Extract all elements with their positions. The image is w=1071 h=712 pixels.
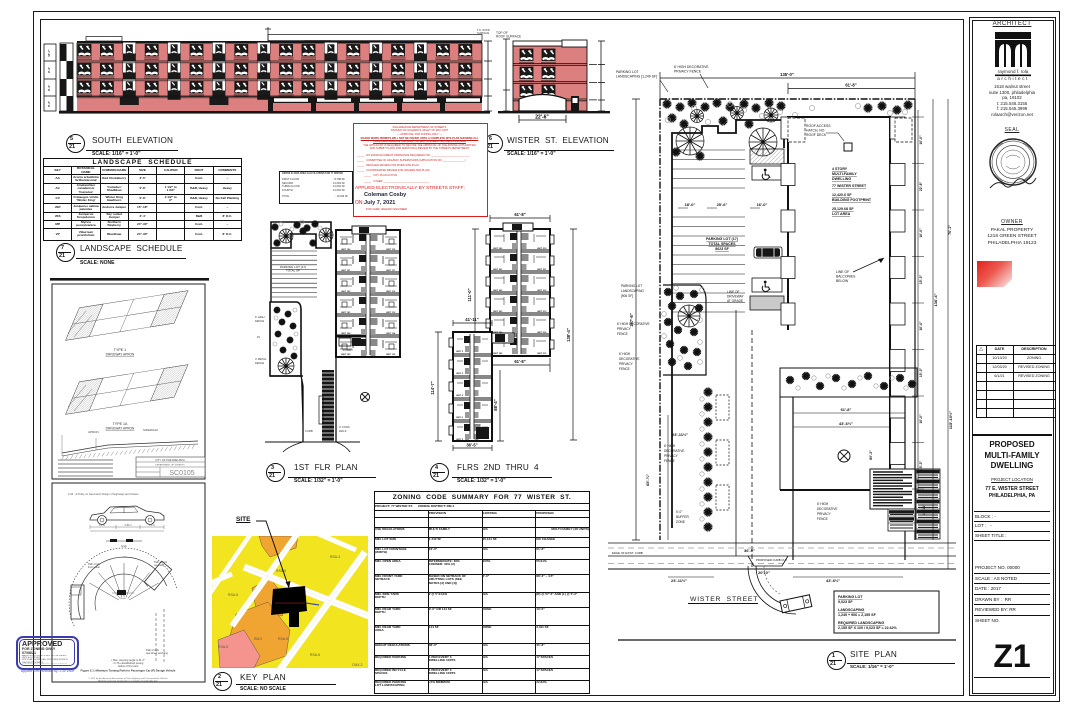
svg-text:10'-7": 10'-7" <box>47 49 51 57</box>
svg-text:PL: PL <box>257 335 261 339</box>
svg-text:rear wheel overhang: rear wheel overhang <box>146 652 168 655</box>
svg-text:RSA-5: RSA-5 <box>218 645 228 649</box>
svg-text:DECORATIVE: DECORATIVE <box>817 507 837 511</box>
svg-text:6' HIGH DECORATIVE: 6' HIGH DECORATIVE <box>617 322 650 326</box>
svg-text:16'-0": 16'-0" <box>757 202 768 207</box>
svg-text:65'-¾": 65'-¾" <box>645 474 650 486</box>
svg-text:TOTAL SPACES: TOTAL SPACES <box>708 242 736 246</box>
svg-text:UNIT 2: UNIT 2 <box>456 439 464 441</box>
svg-text:TYPE 1: TYPE 1 <box>114 348 126 352</box>
svg-text:CITY OF PHILADELPHIA: CITY OF PHILADELPHIA <box>155 458 185 462</box>
svg-text:UNIT 101: UNIT 101 <box>341 270 351 272</box>
svg-text:UNIT 211: UNIT 211 <box>537 269 547 271</box>
svg-text:UNIT 201: UNIT 201 <box>493 269 503 271</box>
svg-text:CURB: CURB <box>305 429 313 433</box>
svg-text:22'-8": 22'-8" <box>919 182 923 192</box>
svg-text:LANDSCAPING [1,249 SF]: LANDSCAPING [1,249 SF] <box>616 75 657 79</box>
svg-text:UNIT 111: UNIT 111 <box>386 270 396 272</box>
svg-text:UNIT 213: UNIT 213 <box>537 311 547 313</box>
svg-text:22'-6": 22'-6" <box>535 115 549 121</box>
svg-text:114'-7": 114'-7" <box>430 381 435 394</box>
svg-text:10'-0": 10'-0" <box>919 228 923 238</box>
svg-text:BELOW: BELOW <box>836 279 849 283</box>
svg-text:1,249 + 906 = 2,155 SF: 1,249 + 906 = 2,155 SF <box>838 613 877 617</box>
svg-text:UNIT 2: UNIT 2 <box>456 373 464 375</box>
svg-text:BALCONIES: BALCONIES <box>836 275 856 279</box>
svg-text:PARKING LOT (17): PARKING LOT (17) <box>706 237 739 241</box>
svg-text:25'-6": 25'-6" <box>717 202 728 207</box>
svg-text:9'-4": 9'-4" <box>47 84 51 91</box>
svg-text:36'-0": 36'-0" <box>744 548 755 553</box>
svg-text:FENCE: FENCE <box>817 517 828 521</box>
svg-text:10'-0": 10'-0" <box>919 135 923 145</box>
svg-text:FENCE: FENCE <box>255 319 264 323</box>
svg-text:15'-3": 15'-3" <box>919 275 923 285</box>
svg-text:DEPARTMENT OF STREETS: DEPARTMENT OF STREETS <box>155 464 185 467</box>
svg-text:ROOF SURFACE: ROOF SURFACE <box>496 35 521 39</box>
svg-text:UNIT 112: UNIT 112 <box>386 291 396 293</box>
svg-text:Figure 2.1: Minimum Turning Pa: Figure 2.1: Minimum Turning Path for Pas… <box>81 669 176 673</box>
svg-text:UNIT 214: UNIT 214 <box>537 331 547 334</box>
svg-text:3.4 m: 3.4 m <box>99 524 105 527</box>
svg-text:BUFFER: BUFFER <box>676 515 689 519</box>
svg-text:FENCE: FENCE <box>255 361 264 365</box>
svg-text:WALK: WALK <box>339 429 347 433</box>
svg-text:BUILDING FOOTPRINT: BUILDING FOOTPRINT <box>832 198 872 202</box>
svg-text:115'-10½": 115'-10½" <box>948 411 953 430</box>
svg-text:RSA-3: RSA-3 <box>330 555 340 559</box>
svg-text:RM-2: RM-2 <box>254 637 262 641</box>
svg-text:15'-3": 15'-3" <box>919 461 923 471</box>
svg-text:SC0105: SC0105 <box>169 470 194 477</box>
svg-text:DWELLING: DWELLING <box>832 177 851 181</box>
svg-text:AT GRADE: AT GRADE <box>727 299 743 303</box>
svg-text:61'-8": 61'-8" <box>841 407 852 412</box>
svg-text:DECORATIVE: DECORATIVE <box>664 449 684 453</box>
svg-text:TYPE 1A: TYPE 1A <box>113 422 128 426</box>
svg-text:LINE OF: LINE OF <box>727 290 739 294</box>
svg-text:15'-3": 15'-3" <box>919 368 923 378</box>
svg-text:9,023 SF: 9,023 SF <box>838 600 853 604</box>
svg-text:PARKING LOT: PARKING LOT <box>838 595 863 599</box>
svg-text:4' METAL: 4' METAL <box>255 357 267 361</box>
svg-text:9'-4": 9'-4" <box>47 100 51 107</box>
svg-text:3.35 m: 3.35 m <box>124 524 131 527</box>
svg-text:LANDSCAPING: LANDSCAPING <box>838 608 865 612</box>
svg-text:10'-0": 10'-0" <box>919 414 923 424</box>
svg-text:front wheel: front wheel <box>88 566 100 569</box>
svg-text:36'-5": 36'-5" <box>466 443 477 448</box>
svg-text:WISTER STREET: WISTER STREET <box>690 596 758 603</box>
svg-text:DECORATIVE: DECORATIVE <box>619 357 639 361</box>
svg-text:111'-0": 111'-0" <box>467 288 472 301</box>
svg-text:SURFACE: SURFACE <box>477 31 490 35</box>
svg-text:61'-8": 61'-8" <box>514 212 525 217</box>
svg-text:20'10": 20'10" <box>758 570 770 575</box>
svg-text:RSA-5: RSA-5 <box>310 653 320 657</box>
svg-text:UNIT 100: UNIT 100 <box>341 249 351 251</box>
svg-text:PRIVACY: PRIVACY <box>817 512 832 516</box>
svg-text:UNIT 103: UNIT 103 <box>341 312 351 314</box>
svg-text:UNIT 2: UNIT 2 <box>456 351 464 353</box>
svg-text:5'-0": 5'-0" <box>676 510 682 514</box>
svg-text:4 STORY: 4 STORY <box>832 167 848 171</box>
svg-text:DRIVEWAY APRON: DRIVEWAY APRON <box>106 353 135 357</box>
svg-text:LOT AREA: LOT AREA <box>832 212 851 216</box>
svg-text:9'-4": 9'-4" <box>47 66 51 73</box>
svg-text:overhang: overhang <box>154 564 165 567</box>
svg-text:43'-6½": 43'-6½" <box>826 578 840 583</box>
svg-text:UNIT 114: UNIT 114 <box>386 332 396 335</box>
svg-text:6' HIGH DECORATIVE: 6' HIGH DECORATIVE <box>674 65 709 69</box>
svg-text:radius of first auto: radius of first auto <box>118 664 139 668</box>
svg-text:Scale: Scale <box>120 598 126 600</box>
svg-text:0.9 m: 0.9 m <box>149 524 155 527</box>
svg-text:LOBBY: LOBBY <box>343 348 353 352</box>
svg-text:ROOF ACCESS: ROOF ACCESS <box>806 124 831 128</box>
svg-text:136'-4": 136'-4" <box>933 293 938 306</box>
svg-text:ROOF DECK: ROOF DECK <box>806 133 827 137</box>
svg-text:raymond f. rola: raymond f. rola <box>998 69 1029 74</box>
svg-text:UNIT 115: UNIT 115 <box>386 354 396 356</box>
svg-text:UNIT 105: UNIT 105 <box>341 354 351 356</box>
svg-text:UNIT 212: UNIT 212 <box>537 290 547 292</box>
svg-text:18'-0": 18'-0" <box>685 202 696 207</box>
svg-text:6' HIGH: 6' HIGH <box>817 502 829 506</box>
svg-text:LINE OF: LINE OF <box>836 270 849 274</box>
svg-text:DRIVEWAY APRON: DRIVEWAY APRON <box>106 427 135 431</box>
svg-text:4' CONC.: 4' CONC. <box>339 425 351 429</box>
svg-text:UNIT 210: UNIT 210 <box>537 248 547 250</box>
svg-text:UNIT 203: UNIT 203 <box>493 311 503 313</box>
svg-text:APRON: APRON <box>88 430 99 434</box>
svg-text:138'-4": 138'-4" <box>566 328 571 342</box>
svg-text:61'-8": 61'-8" <box>514 359 525 364</box>
svg-text:UNIT 202: UNIT 202 <box>493 290 503 292</box>
svg-text:UNIT 2: UNIT 2 <box>456 395 464 397</box>
svg-text:6' HIGH: 6' HIGH <box>255 315 265 319</box>
svg-text:PRIVACY FENCE: PRIVACY FENCE <box>674 70 702 74</box>
svg-text:All rights reserved. Duplicati: All rights reserved. Duplication is a vi… <box>98 680 158 683</box>
svg-text:6' HIGH: 6' HIGH <box>664 444 676 448</box>
svg-text:DRIVEWAY: DRIVEWAY <box>727 295 745 299</box>
svg-text:FENCE: FENCE <box>619 367 630 371</box>
svg-text:12,420.6 SF: 12,420.6 SF <box>832 193 852 197</box>
svg-text:UNIT 113: UNIT 113 <box>386 312 396 314</box>
svg-text:UNIT 205: UNIT 205 <box>493 353 503 355</box>
svg-text:61'-8": 61'-8" <box>845 83 856 88</box>
svg-text:8623 SF: 8623 SF <box>715 247 729 251</box>
svg-text:Scale: Scale <box>121 545 128 548</box>
svg-text:UNIT 215: UNIT 215 <box>537 353 547 355</box>
svg-text:© 2011 by the American Associa: © 2011 by the American Association of St… <box>88 677 168 680</box>
svg-text:EDGE OF EXIST. CURB: EDGE OF EXIST. CURB <box>612 551 643 555</box>
svg-text:77 WISTER STREET: 77 WISTER STREET <box>832 184 867 188</box>
svg-text:PRIVACY: PRIVACY <box>664 454 679 458</box>
svg-text:PARKING LOT: PARKING LOT <box>621 284 642 288</box>
svg-text:23'-11½": 23'-11½" <box>671 578 687 583</box>
svg-text:2-30 A Policy on Geometric D: 2-30 A Policy on Geometric Design of Hig… <box>68 492 139 496</box>
svg-text:10'-0": 10'-0" <box>919 321 923 331</box>
svg-text:UNIT 104: UNIT 104 <box>341 332 351 335</box>
svg-text:MULTI-FAMILY: MULTI-FAMILY <box>832 172 857 176</box>
svg-text:25,129.68 SF: 25,129.68 SF <box>832 207 854 211</box>
svg-text:UNIT 2: UNIT 2 <box>456 417 464 419</box>
svg-text:[906 SF]: [906 SF] <box>621 294 633 298</box>
svg-text:PARKING LOT: PARKING LOT <box>616 70 639 74</box>
svg-text:PRIVACY: PRIVACY <box>619 362 634 366</box>
svg-text:PRIVACY: PRIVACY <box>617 327 632 331</box>
svg-text:UNIT 200: UNIT 200 <box>493 248 503 250</box>
svg-text:UNIT 110: UNIT 110 <box>386 249 396 251</box>
svg-text:PROPOSED CURB CUT: PROPOSED CURB CUT <box>756 558 787 562</box>
svg-text:SIDEWALK: SIDEWALK <box>143 428 158 432</box>
svg-text:architect: architect <box>997 76 1029 80</box>
svg-text:88'-4": 88'-4" <box>493 399 498 410</box>
svg-text:UNIT 102: UNIT 102 <box>341 291 351 293</box>
svg-text:2,155 SF X 100 / 9,023 SF = 22: 2,155 SF X 100 / 9,023 SF = 22.62% <box>838 626 898 630</box>
svg-text:16'-11": 16'-11" <box>922 504 926 516</box>
svg-text:FENCE: FENCE <box>617 332 628 336</box>
svg-text:41'-11": 41'-11" <box>465 317 478 322</box>
svg-text:6' HIGH: 6' HIGH <box>619 352 631 356</box>
svg-text:76'-1": 76'-1" <box>948 225 952 235</box>
svg-text:HATCH, NO: HATCH, NO <box>806 129 825 133</box>
svg-text:RSA-5: RSA-5 <box>278 637 288 641</box>
svg-text:TOTAL SP: TOTAL SP <box>286 269 300 273</box>
svg-text:80'-3": 80'-3" <box>869 450 873 460</box>
svg-text:FENCE: FENCE <box>664 459 675 463</box>
svg-text:43'-6½": 43'-6½" <box>839 421 853 426</box>
svg-text:LANDSCAPING: LANDSCAPING <box>621 289 644 293</box>
svg-text:23'-11½": 23'-11½" <box>672 432 688 437</box>
svg-text:ZONE: ZONE <box>676 520 685 524</box>
svg-text:135'-0": 135'-0" <box>780 72 794 77</box>
svg-text:CMX-2: CMX-2 <box>352 663 363 667</box>
svg-text:REQUIRED LANDSCAPING: REQUIRED LANDSCAPING <box>838 621 885 625</box>
